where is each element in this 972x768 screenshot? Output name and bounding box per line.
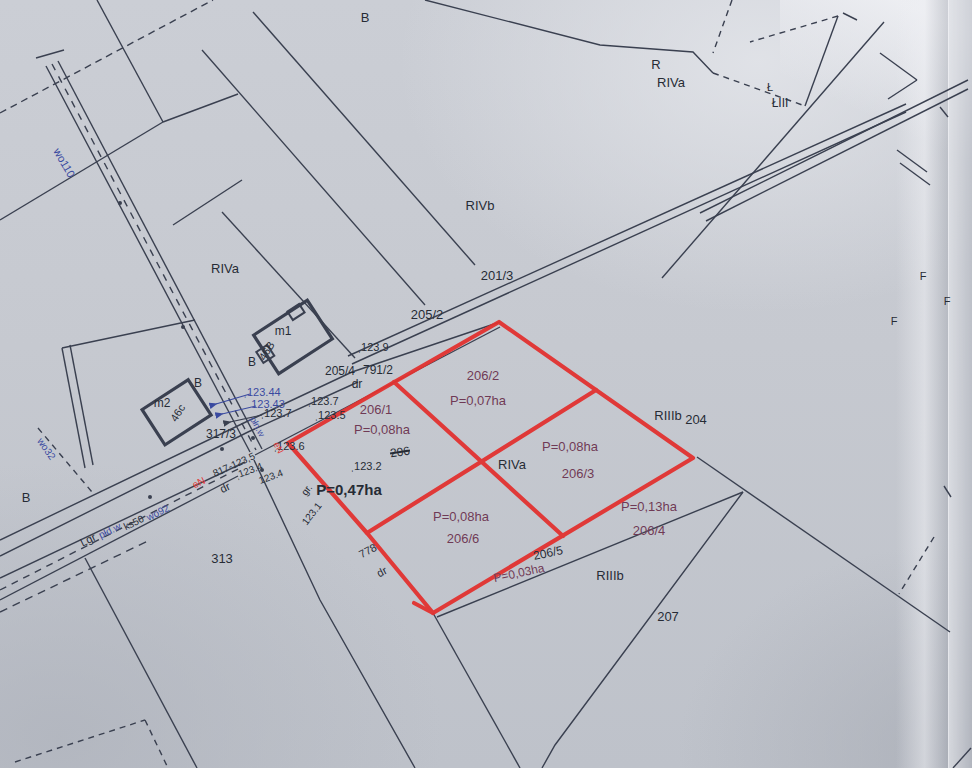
road-main-lower-b [0,462,245,578]
edge-mark-2 [880,53,917,80]
parcel-205-4: 205/4 [325,365,355,377]
road-north-utility-dash [52,64,256,450]
road-778-west-edge [254,460,415,768]
spot-123-44: ˌ123.44 [243,387,280,398]
region-b-sw: B [22,491,31,504]
parcel-206-4: 206/4 [633,524,666,537]
region-riva-nw: RIVa [211,262,239,275]
region-b-top: B [361,11,370,24]
parcel-206-6: 206/6 [447,532,480,545]
region-l: Ł [767,82,773,93]
parcel-206-1: 206/1 [360,403,393,416]
road-201-3-b [352,112,906,364]
edge-mark-3 [888,80,917,99]
road-north-edge-a [46,66,250,452]
boundary-m1-nw [173,180,242,225]
road-north-edge-b [58,61,262,449]
road-ne-b [706,89,968,221]
buildings [142,300,332,445]
boundary-313-west [85,558,197,768]
margin-f-3: F [891,316,898,327]
parcel-lines [0,0,971,768]
boundary-nw-3 [163,94,238,122]
boundary-liii-west-dash [713,0,732,53]
region-liii: ŁIII [772,97,789,109]
boundary-nw-1 [97,0,163,122]
parcel-206-2: 206/2 [467,369,500,382]
cadastral-map-photo: BRRIVaŁŁIIIRIVb201/3205/2ˌ123.9205/4791/… [0,0,972,768]
edge-mark-4 [940,107,948,117]
road-north-tick [36,50,64,58]
region-b-m1: B [248,356,256,368]
parcel-204: 204 [685,413,707,426]
boundary-204-east [697,457,950,632]
building-m1-label: m1 [275,325,292,337]
region-riva-mid: RIVa [498,458,526,471]
tick-east-margin [944,486,951,497]
road-dr-791: dr [352,378,363,390]
parcel-313: 313 [211,552,233,565]
region-riiib-s: RIIIb [596,569,623,582]
area-206-1: P=0,08ha [354,423,410,436]
parcel-207: 207 [657,610,679,623]
edge-mark-1 [843,13,857,20]
boundary-liii-top-dash [750,16,838,42]
area-206-4: P=0,13ha [621,500,677,513]
boundary-liii-east [805,16,838,106]
spot-123-5: ˌ123.5 [314,410,345,421]
region-rivb: RIVb [466,199,495,212]
spot-123-9: ˌ123.9 [357,342,388,353]
boundary-m2-top [62,320,195,348]
area-206-6: P=0,08ha [433,510,489,523]
road-ne-a [700,80,968,213]
boundary-strip-b [253,12,475,265]
parcel-205-2: 205/2 [411,308,444,321]
dashed-boundary-sw-b [145,720,168,768]
margin-f-1: F [920,271,927,282]
spot-123-7-e: ˌ123.7 [307,396,338,407]
corner-line-se [953,748,971,768]
margin-f-2: F [944,296,951,307]
road-778-east-edge [433,613,520,768]
boundary-nw-2 [0,122,163,220]
area-total: P=0,47ha [316,482,381,497]
spot-123-7-w: ˌ123.7 [260,408,291,419]
dashed-east-margin [899,537,934,594]
region-r: R [651,58,660,71]
parcel-206-3: 206/3 [562,467,595,480]
spot-123-2: ˌ123.2 [350,461,381,472]
edge-mark-6 [900,163,930,185]
parcel-317-3: 317/3 [206,428,236,440]
parcel-206-struck: 206 [389,445,411,460]
boundary-ne-long [662,22,884,278]
building-m2-label: m2 [154,397,171,409]
parcel-791-2: 791/2 [363,364,393,376]
region-riiib-ne: RIIIb [654,409,681,422]
road-main-south-dash [0,540,150,612]
area-206-2: P=0,07ha [450,394,506,407]
map-drawing [0,0,972,768]
region-riva-ne: RIVa [657,76,685,89]
edge-mark-5 [897,150,927,172]
region-b-road: B [194,377,202,389]
boundary-liii-solid [425,0,713,73]
boundary-liii-dash [713,73,805,106]
dashed-boundary-sw-a [15,720,145,762]
area-206-3: P=0,08ha [542,440,598,453]
parcel-201-3: 201/3 [481,269,514,282]
